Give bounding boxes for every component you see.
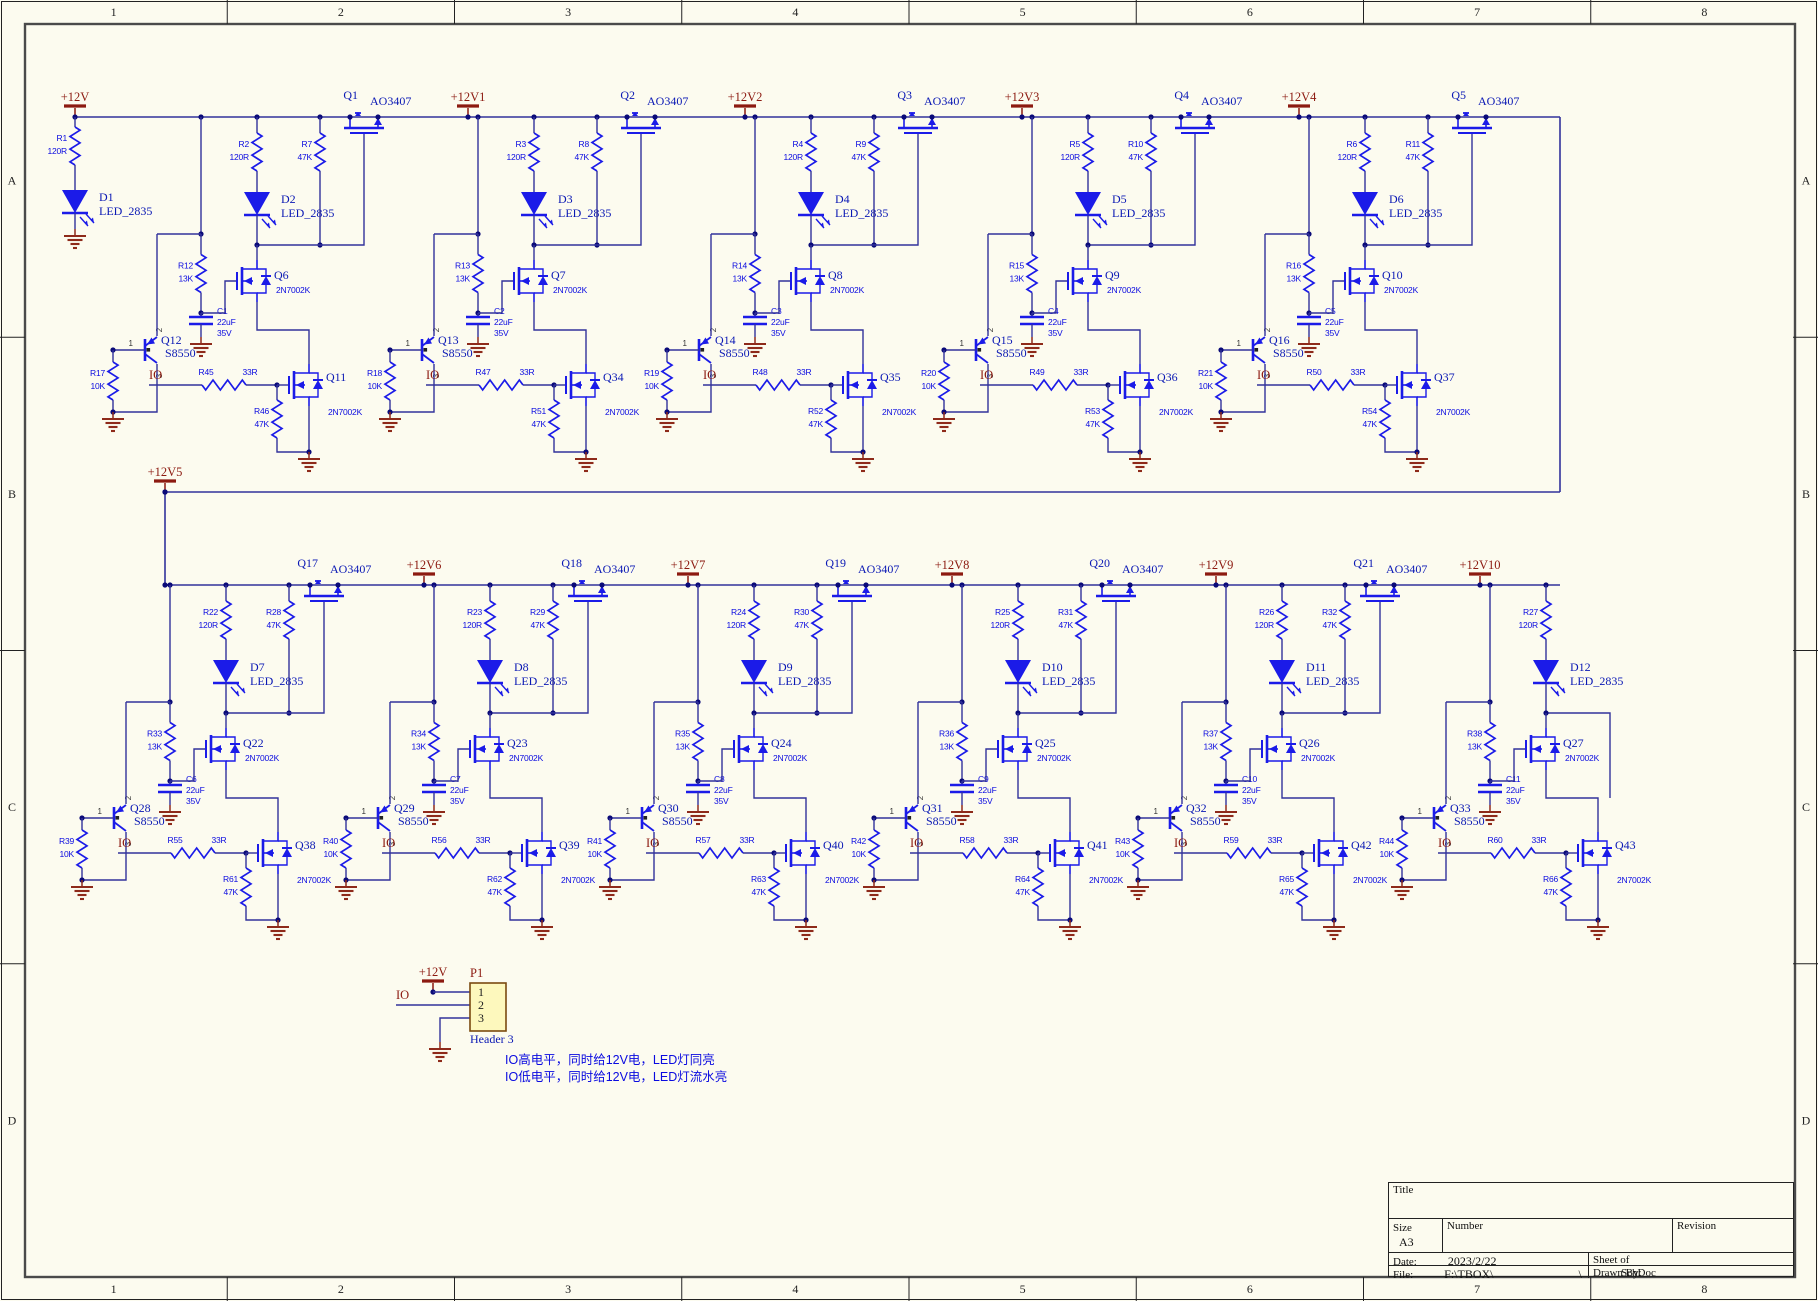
resistor: R5533R	[140, 835, 246, 858]
size-row: Size A3 Number Revision	[1389, 1219, 1793, 1253]
arrow	[1321, 849, 1329, 857]
label: +12V6	[407, 558, 442, 572]
capacitor: C222uF35V	[466, 306, 513, 338]
label: Q29	[394, 801, 415, 815]
wire	[1108, 438, 1140, 452]
wire	[774, 906, 806, 920]
wire	[309, 373, 318, 380]
arrow	[213, 745, 221, 753]
label: Q3	[897, 88, 912, 102]
resistor: R6447K	[1015, 868, 1043, 906]
junction-dot	[1363, 582, 1368, 587]
led-ray-head	[1562, 688, 1566, 694]
arrow	[265, 849, 273, 857]
body-diode	[1092, 276, 1102, 285]
label: +12V	[61, 90, 90, 104]
wire	[811, 285, 820, 293]
resistor: R3047K	[794, 585, 822, 655]
resistor: R6247K	[487, 868, 515, 906]
resistor-body	[806, 133, 816, 171]
led-ray-head	[506, 688, 510, 694]
body-diode	[261, 276, 271, 285]
label: AO3407	[370, 94, 411, 108]
label: +12V7	[671, 558, 706, 572]
led-ray-head	[500, 691, 504, 697]
power-flag: +12V10	[1459, 558, 1500, 588]
ground-symbol	[267, 920, 289, 939]
label: 33R	[1268, 835, 1283, 845]
label: D	[8, 1113, 17, 1127]
label: LED_2835	[99, 204, 152, 218]
resistor-body	[826, 400, 836, 438]
label: R25	[995, 607, 1010, 617]
power-flag: +12V7	[671, 558, 706, 588]
resistor-body	[165, 723, 175, 761]
label: 47K	[266, 620, 281, 630]
label: AO3407	[1478, 94, 1519, 108]
resistor: R1120R	[47, 117, 80, 175]
resistor: R6033R	[1460, 835, 1566, 858]
wire	[848, 364, 863, 373]
label: R61	[223, 874, 238, 884]
resistor: R4933R	[1002, 367, 1108, 390]
driver-unit: R22120RD7LED_2835R2847KQ17AO3407+12V6R33…	[59, 556, 441, 939]
label: +12V10	[1459, 558, 1500, 572]
wire	[490, 737, 499, 744]
wire	[1267, 761, 1282, 770]
ground-symbol	[1391, 880, 1413, 899]
arrow	[529, 849, 537, 857]
driver-unit: R26120RD11LED_2835R3247KQ21AO3407+12V10R…	[1115, 556, 1501, 939]
wire	[1018, 753, 1027, 761]
label: Q19	[825, 556, 846, 570]
resistor-body	[1310, 380, 1354, 390]
label: 1	[98, 807, 103, 816]
label: +12V8	[935, 558, 970, 572]
label: LED_2835	[281, 206, 334, 220]
label: 2N7002K	[1107, 285, 1142, 295]
led-ray-head	[1034, 688, 1038, 694]
label: 22uF	[217, 317, 236, 327]
label: 35V	[1325, 328, 1340, 338]
base-pad	[380, 816, 384, 820]
wire	[1319, 832, 1334, 841]
label: 10K	[644, 381, 659, 391]
power-flag: +12V1	[451, 90, 486, 120]
resistor: R5147K	[531, 400, 559, 438]
wire	[1018, 737, 1027, 744]
label: B	[1802, 487, 1810, 501]
resistor-body	[1397, 830, 1407, 868]
label: 47K	[223, 887, 238, 897]
resistor-body	[1133, 830, 1143, 868]
label: +12V2	[728, 90, 763, 104]
arrow	[1533, 745, 1541, 753]
wire	[211, 761, 226, 770]
schematic-canvas: 1122334455667788AABBCCDD+12V+12V5R1120RD…	[0, 0, 1818, 1301]
wire	[1385, 438, 1417, 452]
label: 10K	[90, 381, 105, 391]
pmos-pass-transistor: Q3AO3407	[897, 88, 965, 133]
label: Q21	[1353, 556, 1374, 570]
label: 47K	[1015, 887, 1030, 897]
resistor-body	[1076, 601, 1086, 639]
resistor: R3313K	[147, 702, 175, 781]
power-flag: +12V4	[1282, 90, 1318, 120]
led-triangle	[62, 190, 88, 213]
pmos-pass-transistor: Q1AO3407	[343, 88, 411, 133]
wire	[831, 438, 863, 452]
label: 13K	[1467, 742, 1482, 752]
label: 35V	[494, 328, 509, 338]
resistor-body	[1340, 601, 1350, 639]
label: C8	[714, 774, 725, 784]
collector	[378, 822, 390, 831]
label: D6	[1389, 192, 1404, 206]
ground-symbol	[1210, 412, 1232, 431]
ground-symbol	[656, 412, 678, 431]
label: 47K	[574, 152, 589, 162]
label: R64	[1015, 874, 1030, 884]
label: LED_2835	[778, 674, 831, 688]
resistor: R2110K	[1198, 350, 1226, 412]
label: 10K	[921, 381, 936, 391]
pmos-pass-transistor: Q5AO3407	[1451, 88, 1519, 133]
label: R39	[59, 836, 74, 846]
label: R5	[1070, 139, 1081, 149]
label: +12V3	[1005, 90, 1040, 104]
resistor-body	[1146, 133, 1156, 171]
label: IO	[1174, 836, 1187, 850]
wire	[1282, 737, 1291, 744]
wire	[1365, 134, 1472, 245]
wire	[586, 373, 595, 380]
wire	[811, 269, 820, 276]
resistor-body	[1103, 400, 1113, 438]
led-triangle	[1005, 660, 1031, 683]
wire	[527, 865, 542, 874]
capacitor: C622uF35V	[158, 774, 205, 806]
label: IO	[703, 368, 716, 382]
wire	[1350, 293, 1365, 302]
label: 10K	[1379, 849, 1394, 859]
label: S8550	[996, 346, 1027, 360]
nmos-transistor	[566, 364, 600, 406]
wire	[1302, 906, 1334, 920]
led-ray-head	[1375, 223, 1379, 229]
ground-symbol	[863, 880, 885, 899]
resistor: R3713K	[1203, 702, 1231, 781]
arrow	[1404, 381, 1412, 389]
base-pad	[1172, 816, 1176, 820]
label: C6	[186, 774, 197, 784]
label: R2	[239, 139, 250, 149]
label: 33R	[212, 835, 227, 845]
arrow	[1005, 745, 1013, 753]
resistor-body	[592, 133, 602, 171]
label: 33R	[476, 835, 491, 845]
wire	[571, 397, 586, 406]
wire	[1073, 293, 1088, 302]
wire	[791, 832, 806, 841]
label: C	[8, 800, 16, 814]
label: 35V	[186, 796, 201, 806]
nmos-transistor: Q232N7002K	[470, 728, 544, 770]
wire	[1088, 285, 1097, 293]
led-ray-head	[827, 220, 831, 226]
label: Header 3	[470, 1032, 514, 1046]
junction-dot	[901, 114, 906, 119]
arrow	[1352, 277, 1360, 285]
label: 6	[1247, 5, 1253, 19]
label: 1	[406, 339, 411, 348]
label: 1	[1154, 807, 1159, 816]
label: 2	[338, 5, 344, 19]
label: D1	[99, 190, 114, 204]
resistor-body	[202, 380, 246, 390]
label: 2N7002K	[605, 407, 640, 417]
wire	[490, 753, 499, 761]
outer-border	[2, 2, 1817, 1300]
label: Q36	[1157, 370, 1178, 384]
label: R14	[732, 261, 747, 271]
label: 10K	[59, 849, 74, 859]
collector	[1170, 822, 1182, 831]
label: Q13	[438, 333, 459, 347]
led-triangle	[1075, 192, 1101, 215]
wire	[1073, 260, 1088, 269]
label: A	[8, 174, 17, 188]
nmos-transistor	[289, 364, 323, 406]
label: S8550	[1454, 814, 1485, 828]
label: Q28	[130, 801, 151, 815]
arrow	[793, 849, 801, 857]
drawn-by-cell: Drawn By: SchDoc	[1589, 1266, 1793, 1278]
label: R54	[1362, 406, 1377, 416]
nmos-transistor: Q252N7002K	[998, 728, 1072, 770]
title-label: Title	[1389, 1183, 1793, 1218]
label: 2N7002K	[1617, 875, 1652, 885]
junction-dot	[1213, 582, 1218, 587]
label: 35V	[1242, 796, 1257, 806]
label: 35V	[771, 328, 786, 338]
wire	[242, 293, 257, 302]
wire	[1546, 753, 1555, 761]
label: 10K	[1198, 381, 1213, 391]
label: 120R	[47, 146, 67, 156]
label: Q12	[161, 333, 182, 347]
label: 10K	[1115, 849, 1130, 859]
wire	[1350, 260, 1365, 269]
body-diode	[230, 744, 240, 753]
label: D12	[1570, 660, 1591, 674]
resistor: R6647K	[1543, 868, 1571, 906]
led-ray-head	[91, 218, 95, 224]
led-ray-head	[1381, 220, 1385, 226]
label: Q39	[559, 838, 580, 852]
pmos-pass-transistor: Q17AO3407	[297, 556, 371, 601]
collector	[114, 822, 126, 831]
label: R3	[516, 139, 527, 149]
label: Q2	[620, 88, 635, 102]
label: 2N7002K	[297, 875, 332, 885]
label: 47K	[751, 887, 766, 897]
label: LED_2835	[835, 206, 888, 220]
date-cell: Date: 2023/2/22	[1389, 1253, 1589, 1265]
label: R46	[254, 406, 269, 416]
power-flag: +12V9	[1199, 558, 1234, 588]
label: 22uF	[714, 785, 733, 795]
wire	[1531, 728, 1546, 737]
wire	[754, 737, 763, 744]
wire	[542, 857, 551, 865]
resistor: R4647K	[254, 400, 282, 438]
resistor: R6120R	[1337, 117, 1370, 187]
label: 47K	[1085, 419, 1100, 429]
resistor: R5247K	[808, 400, 836, 438]
label: Q5	[1451, 88, 1466, 102]
resistor: R1213K	[178, 234, 206, 313]
label: B	[8, 487, 16, 501]
label: 2N7002K	[1301, 753, 1336, 763]
wire	[739, 728, 754, 737]
label: 2N7002K	[830, 285, 865, 295]
wire	[1070, 857, 1079, 865]
wire	[242, 260, 257, 269]
wire	[1282, 753, 1291, 761]
junction-dot	[863, 582, 868, 587]
resistor-body	[957, 723, 967, 761]
label: R41	[587, 836, 602, 846]
label: 47K	[1128, 152, 1143, 162]
nmos-transistor: Q102N7002K	[1345, 260, 1419, 302]
label: IO	[980, 368, 993, 382]
resistor: R4410K	[1379, 818, 1407, 880]
label: IO	[1438, 836, 1451, 850]
resistor-body	[1216, 362, 1226, 400]
resistor: R1413K	[732, 234, 760, 313]
label: S8550	[926, 814, 957, 828]
ground-symbol	[933, 412, 955, 431]
body-diode	[1338, 848, 1348, 857]
label: Q24	[771, 736, 792, 750]
nmos-transistor	[258, 832, 292, 874]
label: 33R	[243, 367, 258, 377]
label: D2	[281, 192, 296, 206]
label: 13K	[455, 274, 470, 284]
wire	[754, 770, 806, 832]
label: LED_2835	[1112, 206, 1165, 220]
label: Q17	[297, 556, 318, 570]
wire	[1282, 770, 1334, 832]
nmos-transistor	[1120, 364, 1154, 406]
base-pad	[908, 816, 912, 820]
label: 120R	[783, 152, 803, 162]
label: 22uF	[450, 785, 469, 795]
wire	[863, 373, 872, 380]
label: 3	[565, 1282, 571, 1296]
label: 120R	[506, 152, 526, 162]
base-pad	[701, 348, 705, 352]
wire	[1267, 728, 1282, 737]
label: 35V	[1048, 328, 1063, 338]
label: Q15	[992, 333, 1013, 347]
junction-dot	[465, 114, 470, 119]
junction-dot	[347, 114, 352, 119]
label: C7	[450, 774, 461, 784]
driver-unit: R4120RD4LED_2835R947KQ3AO3407+12V3R1413K…	[644, 88, 1039, 471]
ground-symbol	[1587, 920, 1609, 939]
resistor-body	[756, 380, 800, 390]
label: Q16	[1269, 333, 1290, 347]
label: 1	[362, 807, 367, 816]
label: 2N7002K	[328, 407, 363, 417]
label: R6	[1347, 139, 1358, 149]
arrow	[1269, 745, 1277, 753]
resistor: R3613K	[939, 702, 967, 781]
wire	[257, 269, 266, 276]
ground-symbol	[1129, 452, 1151, 471]
resistor-body	[479, 380, 523, 390]
resistor: R847K	[574, 117, 602, 187]
wire	[542, 841, 551, 848]
nmos-transistor: Q92N7002K	[1068, 260, 1142, 302]
wire	[278, 857, 287, 865]
label: R23	[467, 607, 482, 617]
pmos-pass-transistor: Q21AO3407	[1353, 556, 1427, 601]
wire	[534, 302, 586, 364]
label: Q14	[715, 333, 736, 347]
junction-dot	[1019, 114, 1024, 119]
resistor: R22120R	[198, 585, 231, 655]
label: R45	[199, 367, 214, 377]
label: IO	[910, 836, 923, 850]
resistor: R6547K	[1279, 868, 1307, 906]
label: R1	[57, 133, 68, 143]
resistor-body	[1027, 255, 1037, 293]
resistor-body	[1277, 601, 1287, 639]
label: Q9	[1105, 268, 1120, 282]
label: S8550	[662, 814, 693, 828]
resistor: R24120R	[726, 585, 759, 655]
body-diode	[1550, 744, 1560, 753]
label: 13K	[147, 742, 162, 752]
label: 2N7002K	[1353, 875, 1388, 885]
wire	[1088, 269, 1097, 276]
resistor-body	[1013, 601, 1023, 639]
label: 35V	[217, 328, 232, 338]
label: C2	[494, 306, 505, 316]
title-row: Title	[1389, 1183, 1793, 1219]
label: AO3407	[647, 94, 688, 108]
wire	[806, 857, 815, 865]
resistor-body	[1360, 133, 1370, 171]
junction-dot	[835, 582, 840, 587]
label: S8550	[134, 814, 165, 828]
label: 1	[890, 807, 895, 816]
junction-dot	[1296, 114, 1301, 119]
label: 2N7002K	[553, 285, 588, 295]
wire	[1038, 906, 1070, 920]
driver-unit: R27120RD12LED_2835R3813KC1122uF35VQ272N7…	[1379, 582, 1652, 939]
body-diode	[590, 380, 600, 389]
label: 33R	[1074, 367, 1089, 377]
resistor-body	[385, 362, 395, 400]
ground-symbol	[1406, 452, 1428, 471]
resistor-body	[272, 400, 282, 438]
wire	[475, 728, 490, 737]
resistor-body	[241, 868, 251, 906]
